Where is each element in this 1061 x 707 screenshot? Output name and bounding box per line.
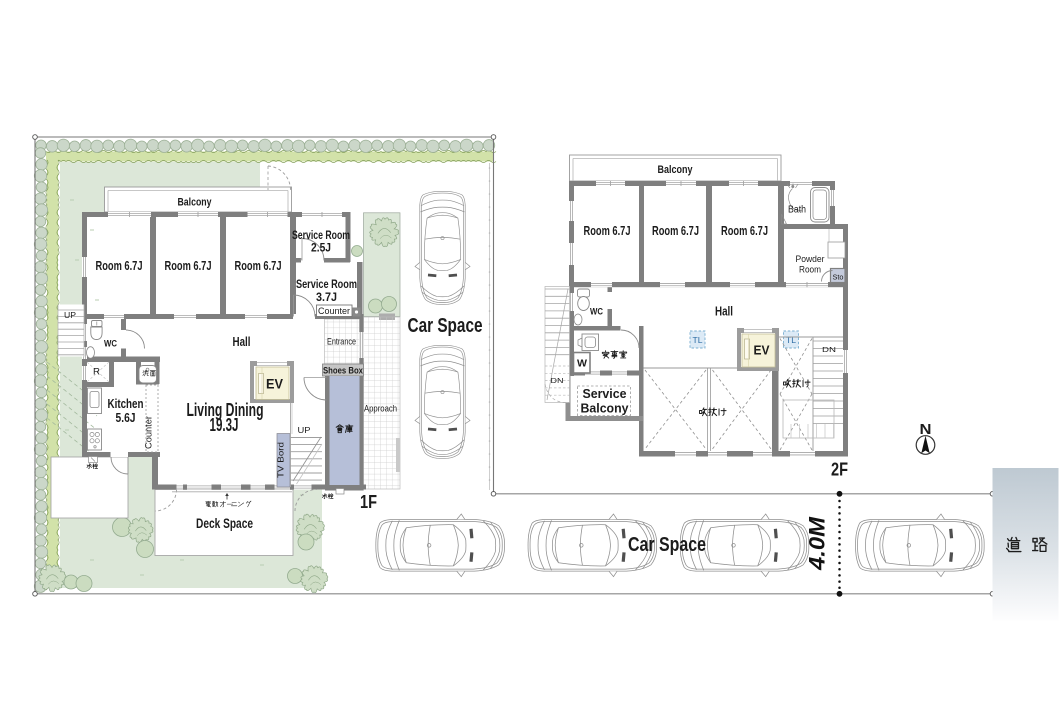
svg-text:DN: DN <box>822 345 836 354</box>
svg-text:Entrance: Entrance <box>327 337 356 347</box>
svg-text:WC: WC <box>104 339 117 350</box>
svg-text:Hall: Hall <box>233 335 251 349</box>
svg-text:TL: TL <box>786 335 796 345</box>
svg-text:Service: Service <box>583 386 627 401</box>
svg-text:2.5J: 2.5J <box>311 243 331 255</box>
svg-text:Room: Room <box>799 265 821 276</box>
svg-text:Car Space: Car Space <box>408 315 483 337</box>
svg-text:Bath: Bath <box>788 205 806 216</box>
svg-text:Car Space: Car Space <box>628 534 706 556</box>
svg-text:Service Room: Service Room <box>296 277 357 291</box>
svg-text:EV: EV <box>266 377 283 392</box>
svg-text:Shoes Box: Shoes Box <box>323 366 364 377</box>
svg-text:Service Room: Service Room <box>292 230 350 242</box>
svg-text:WC: WC <box>590 307 603 318</box>
svg-text:TV Bord: TV Bord <box>277 442 286 478</box>
svg-text:UP: UP <box>64 311 76 320</box>
svg-text:Kitchen: Kitchen <box>108 397 144 411</box>
svg-text:Counter: Counter <box>144 416 155 449</box>
svg-text:Balcony: Balcony <box>178 197 213 209</box>
svg-text:Room 6.7J: Room 6.7J <box>721 224 768 238</box>
svg-text:DN: DN <box>551 376 564 385</box>
svg-text:4.0M: 4.0M <box>805 516 830 571</box>
svg-text:EV: EV <box>754 343 770 358</box>
svg-text:TL: TL <box>693 335 703 345</box>
svg-text:Deck Space: Deck Space <box>196 516 253 531</box>
svg-text:Balcony: Balcony <box>658 164 694 176</box>
svg-text:Counter: Counter <box>318 306 350 317</box>
svg-text:Room 6.7J: Room 6.7J <box>652 224 699 238</box>
svg-text:Room 6.7J: Room 6.7J <box>584 224 631 238</box>
svg-text:Room 6.7J: Room 6.7J <box>235 259 282 273</box>
svg-text:5.6J: 5.6J <box>116 411 136 425</box>
svg-text:Sto: Sto <box>833 275 844 282</box>
svg-text:Hall: Hall <box>715 305 733 319</box>
svg-text:UP: UP <box>298 425 311 435</box>
svg-text:Balcony: Balcony <box>581 401 630 416</box>
svg-text:Approach: Approach <box>364 404 397 415</box>
svg-text:Powder: Powder <box>796 254 825 265</box>
svg-text:3.7J: 3.7J <box>316 290 337 304</box>
svg-text:W: W <box>577 359 588 370</box>
svg-text:1F: 1F <box>360 492 377 512</box>
svg-text:Room 6.7J: Room 6.7J <box>96 259 143 273</box>
svg-text:Room 6.7J: Room 6.7J <box>165 259 212 273</box>
svg-text:2F: 2F <box>831 460 848 480</box>
svg-text:R: R <box>93 367 100 378</box>
svg-text:19.3J: 19.3J <box>210 415 239 435</box>
